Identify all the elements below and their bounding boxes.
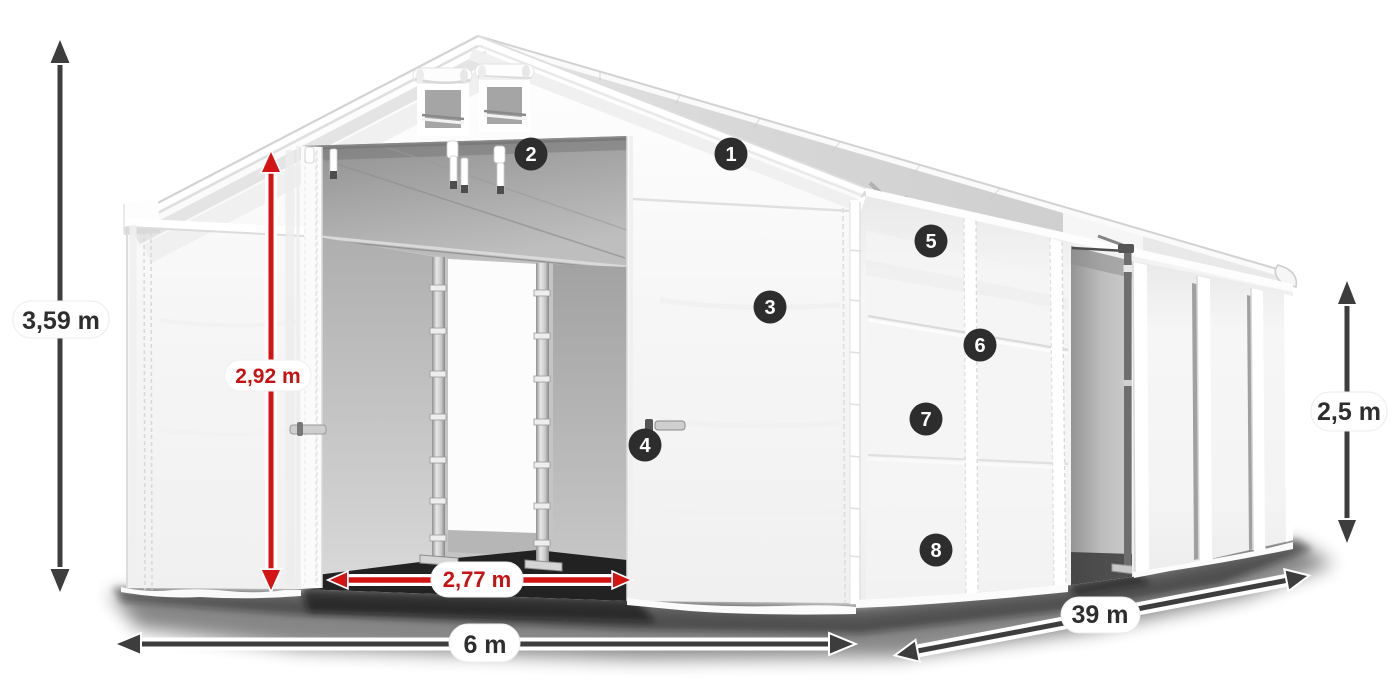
svg-text:6 m: 6 m [463,631,506,659]
svg-text:2,92 m: 2,92 m [235,365,300,388]
svg-text:4: 4 [639,435,651,457]
svg-text:8: 8 [930,540,941,562]
svg-text:5: 5 [925,231,936,253]
svg-text:7: 7 [920,409,931,431]
svg-text:3: 3 [764,297,775,319]
svg-text:1: 1 [725,144,736,166]
svg-text:2,5 m: 2,5 m [1317,398,1381,426]
svg-text:3,59 m: 3,59 m [22,307,100,335]
svg-text:2,77 m: 2,77 m [443,567,512,592]
svg-text:2: 2 [525,144,536,166]
svg-text:39 m: 39 m [1072,601,1129,629]
svg-text:6: 6 [974,335,985,357]
